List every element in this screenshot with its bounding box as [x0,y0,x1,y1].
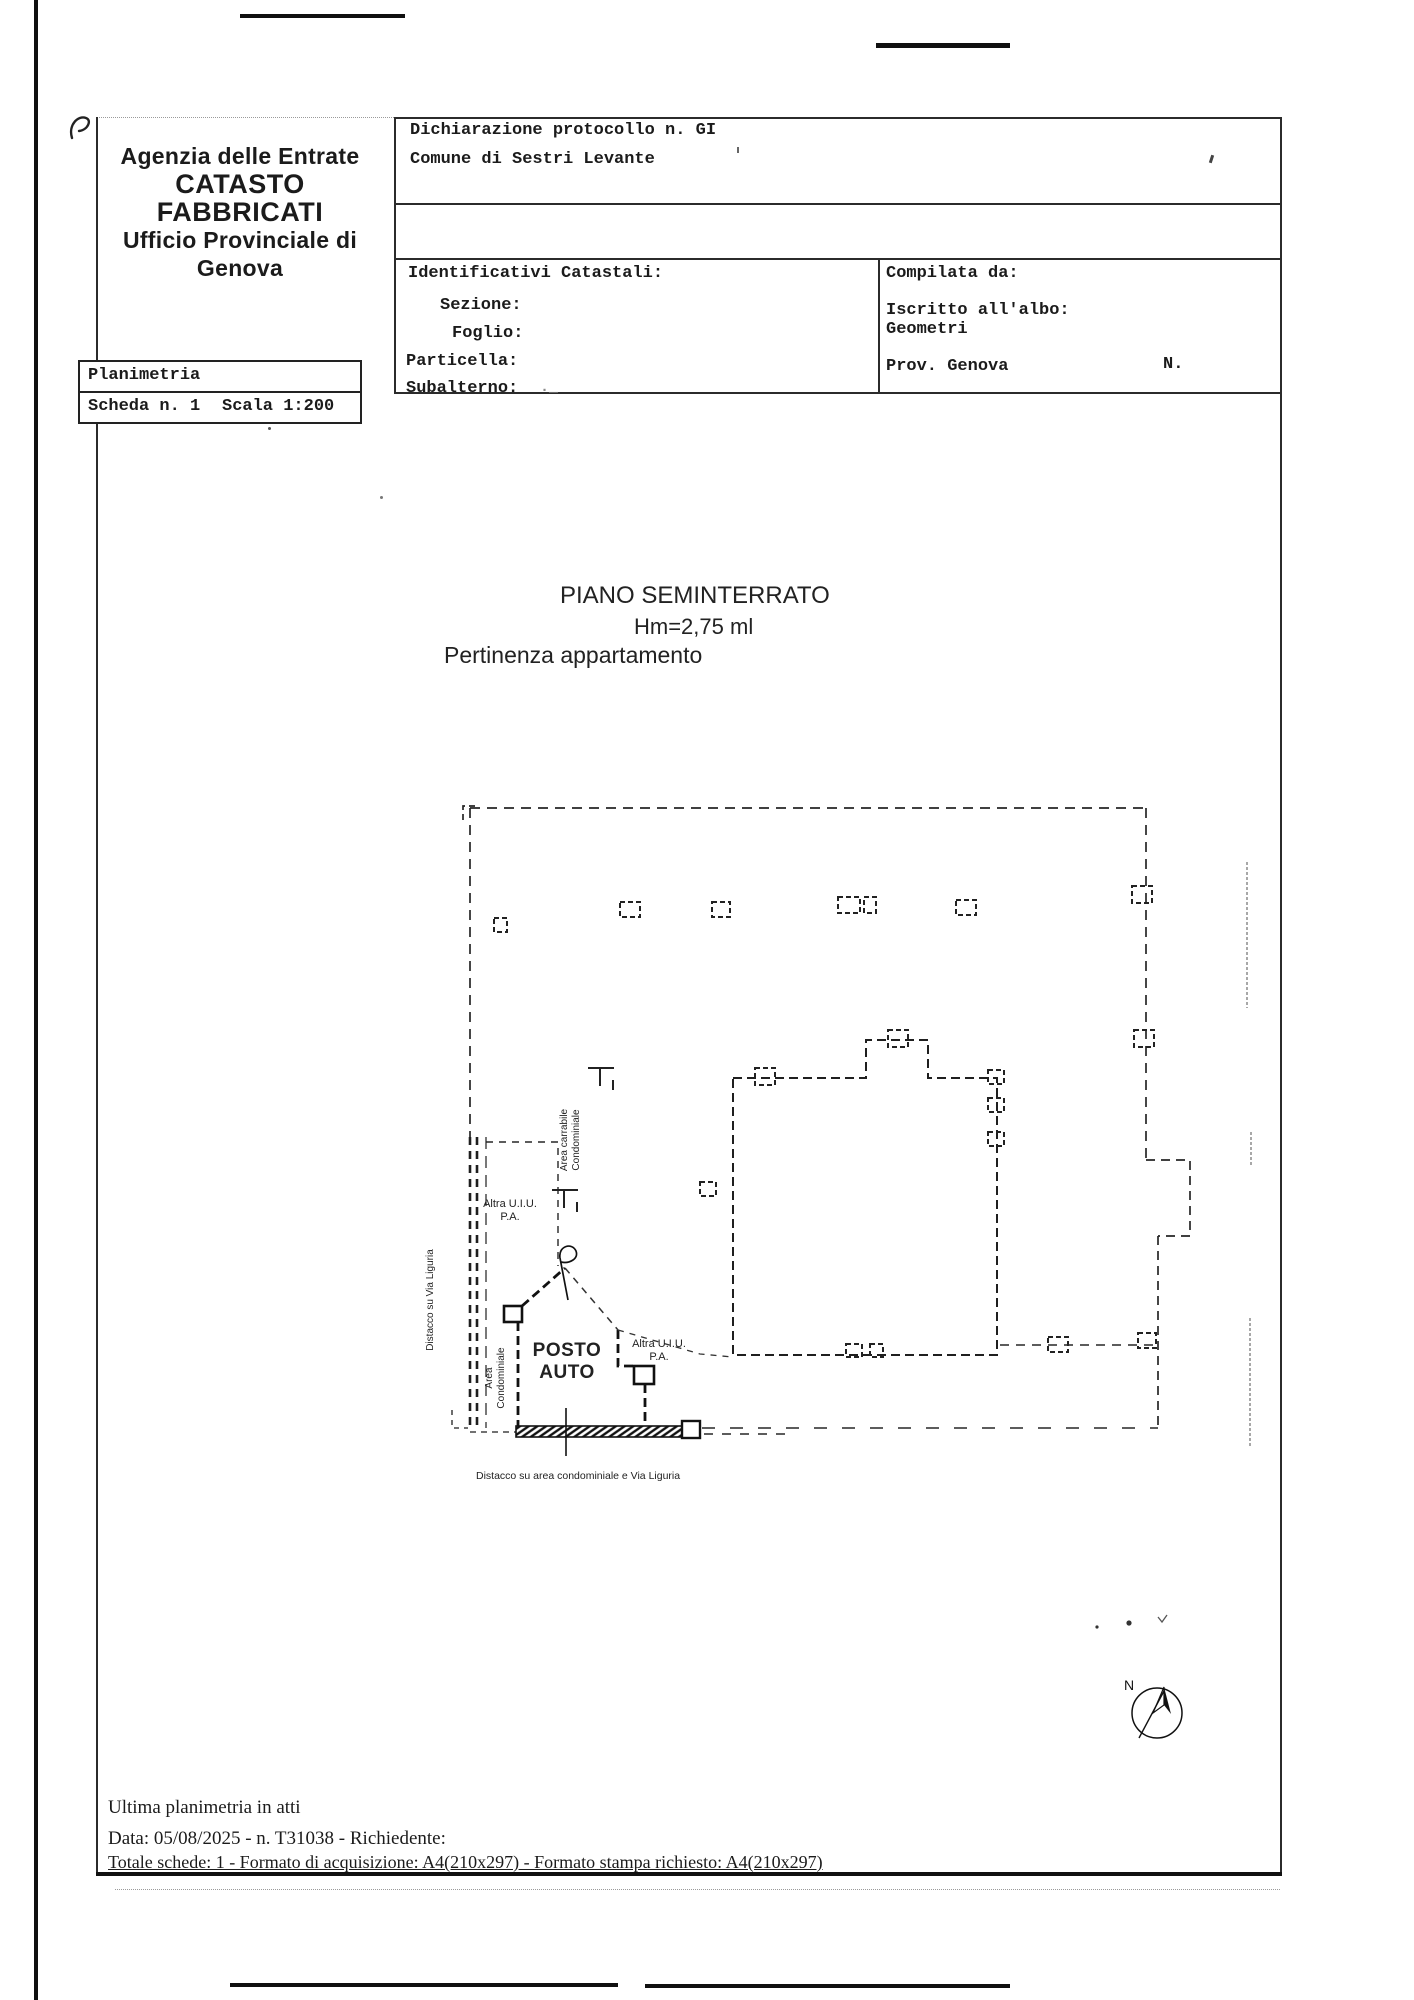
catastali-particella-label: Particella: [406,352,518,371]
agency-line2: CATASTO FABBRICATI [90,170,390,226]
agency-line4: Genova [90,254,390,282]
footer-line1: Ultima planimetria in atti [108,1797,301,1819]
label-posto-auto-line2: AUTO [528,1362,606,1384]
pen-mark-path [71,117,89,138]
protocol-box-bottom [394,203,1280,205]
compilata-n-label: N. [1163,355,1183,374]
id-box-top [394,258,1280,260]
scan-vertical-artifacts [1247,862,1251,1446]
label-altra-uiu-bottom-line2: P.A. [626,1351,692,1364]
compilata-title: Compilata da: [886,264,1019,283]
scan-dots [1095,1615,1167,1629]
catastali-title: Identificativi Catastali: [408,264,663,283]
plan-pillars [494,886,1156,1352]
compilata-box-left [878,258,880,392]
plan-inner-building [733,1030,1158,1357]
id-box-bottom [394,392,1280,394]
north-compass: N [1124,1677,1182,1738]
catastali-sezione-label: Sezione: [440,296,522,315]
scan-speck-4 [380,496,383,499]
scan-edge-bar-top-1 [240,14,405,18]
frame-bottom-dotted [115,1889,1280,1890]
scan-edge-bar-left [34,0,38,2000]
protocol-line2: Comune di Sestri Levante [410,150,655,169]
label-area-carrabile-line1: Area carrabile [559,1090,571,1190]
planimetria-box: Planimetria [78,360,362,393]
label-distacco-via: Distacco su Via Liguria [425,1215,439,1385]
compilata-albo-line2: Geometri [886,320,968,339]
scheda-box: Scheda n. 1 Scala 1:200 [78,391,362,424]
scanned-cadastral-document: Agenzia delle Entrate CATASTO FABBRICATI… [0,0,1414,2000]
scan-edge-bar-top-2 [876,43,1010,48]
label-altra-uiu-bottom: Altra U.I.U. P.A. [626,1338,692,1364]
scan-speck-1 [1209,155,1214,164]
scan-speck-3 [268,427,271,430]
frame-top [394,117,1280,119]
label-area-condominiale-line2: Condominiale [496,1333,508,1423]
scan-speck-2 [737,147,739,153]
scan-edge-bar-bottom-1 [230,1983,618,1987]
footer-line2: Data: 05/08/2025 - n. T31038 - Richieden… [108,1828,446,1850]
label-distacco-bottom: Distacco su area condominiale e Via Ligu… [476,1470,696,1482]
label-posto-auto: POSTO AUTO [528,1340,606,1384]
label-area-condominiale: Area Condominiale [484,1333,510,1423]
label-area-carrabile-line2: Condominiale [571,1090,583,1190]
label-altra-uiu-bottom-line1: Altra U.I.U. [626,1338,692,1351]
catastali-subalterno-value: ._ [540,379,558,396]
label-altra-uiu-top-line2: P.A. [478,1211,542,1224]
catastali-foglio-label: Foglio: [452,324,523,343]
footer-line3: Totale schede: 1 - Formato di acquisizio… [108,1852,823,1873]
scan-edge-bar-bottom-2 [645,1984,1010,1988]
label-altra-uiu-top-line1: Altra U.I.U. [478,1198,542,1211]
catastali-subalterno-label: Subalterno: [406,379,518,398]
compilata-prov: Prov. Genova [886,357,1008,376]
label-area-carrabile: Area carrabile Condominiale [559,1090,585,1190]
frame-top-dotted [96,117,394,118]
compilata-albo-line1: Iscritto all'albo: [886,301,1070,320]
protocol-line1: Dichiarazione protocollo n. GI [410,121,716,140]
label-area-condominiale-line1: Area [484,1333,496,1423]
label-posto-auto-line1: POSTO [528,1340,606,1362]
scheda-label: Scheda n. 1 [88,397,200,416]
agency-line1: Agenzia delle Entrate [90,142,390,170]
planimetria-label: Planimetria [80,362,360,385]
section-flag-symbol [560,1246,577,1300]
scala-label: Scala 1:200 [222,397,334,416]
protocol-box-left [394,117,396,392]
compass-n-label: N [1124,1677,1134,1693]
agency-header: Agenzia delle Entrate CATASTO FABBRICATI… [90,142,390,282]
agency-line3: Ufficio Provinciale di [90,226,390,254]
floor-title: PIANO SEMINTERRATO [560,582,830,610]
label-altra-uiu-top: Altra U.I.U. P.A. [478,1198,542,1224]
